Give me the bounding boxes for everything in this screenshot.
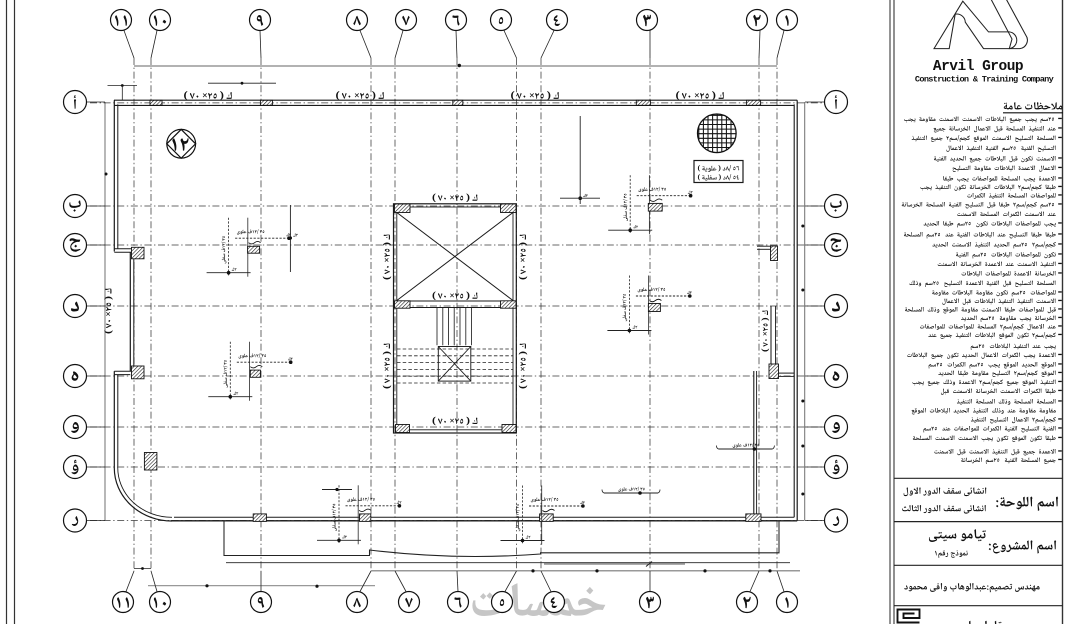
- svg-text:Arvil Group: Arvil Group: [933, 59, 1024, 75]
- svg-text:Construction & Training Compan: Construction & Training Company: [915, 75, 1054, 85]
